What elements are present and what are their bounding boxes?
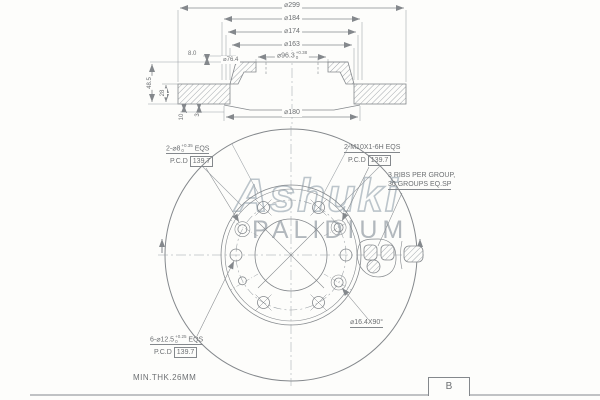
callout-bolt-holes: 6-⌀12.5+0.250 EQS P.C.D139.7	[150, 335, 203, 358]
bore-value: ⌀96.3	[277, 52, 295, 59]
dim-inner-bottom-diameter: ⌀180	[282, 109, 302, 117]
bolt-eqs: EQS	[188, 336, 203, 343]
dim-slot-width: 3	[194, 112, 202, 117]
dim-outer-diameter: ⌀299	[282, 2, 302, 10]
dim-ring-inner-diameter: ⌀163	[282, 41, 302, 49]
dim-flange-thickness: 8.0	[186, 50, 198, 58]
thread-pcd-value: 139.7	[368, 155, 392, 166]
bolt-pcd-label: P.C.D	[154, 349, 172, 356]
bolt-spec: 6-⌀12.5	[150, 336, 174, 343]
bore-tol-lower: 0	[296, 56, 307, 61]
dim-pilot-diameter: ⌀76.4	[221, 56, 240, 64]
rib-group-detail	[357, 239, 423, 277]
dim-overall-height: 48.5	[146, 76, 154, 90]
dowel-spec: 2-⌀8	[166, 145, 180, 152]
callout-chamfer: ⌀16.4X90°	[350, 318, 383, 328]
min-thickness-note: MIN.THK.26MM	[133, 373, 196, 382]
dim-hat-outer-diameter: ⌀184	[282, 15, 302, 23]
dim-hat-inner-diameter: ⌀174	[282, 28, 302, 36]
dim-disc-thickness: 28	[159, 89, 167, 98]
thread-spec: 2-M10X1-6H EQS	[344, 143, 400, 153]
dowel-pcd-value: 139.7	[190, 156, 214, 167]
dim-plate-thickness: 10	[178, 113, 186, 122]
bolt-pcd-value: 139.7	[174, 347, 198, 358]
bolt-tol-lower: 0	[175, 340, 186, 345]
callout-ribs-note: 3 RIBS PER GROUP, 30 GROUPS EQ.SP	[388, 171, 455, 190]
thread-pcd-label: P.C.D	[348, 157, 366, 164]
callout-dowel-holes: 2-⌀8+0.350 EQS P.C.D139.7	[166, 144, 213, 167]
dim-bore-diameter: ⌀96.3+0.380	[275, 51, 309, 60]
dowel-eqs: EQS	[195, 145, 210, 152]
dowel-tol-lower: 0	[181, 149, 192, 154]
callout-thread-holes: 2-M10X1-6H EQS P.C.D139.7	[344, 143, 400, 166]
dowel-pcd-label: P.C.D	[170, 158, 188, 165]
ribs-note-line1: 3 RIBS PER GROUP,	[388, 171, 455, 180]
ribs-note-line2: 30 GROUPS EQ.SP	[388, 180, 451, 190]
chamfer-spec: ⌀16.4X90°	[350, 318, 383, 328]
revision-letter-cell: B	[428, 377, 470, 396]
section-view-drawing	[148, 8, 406, 124]
